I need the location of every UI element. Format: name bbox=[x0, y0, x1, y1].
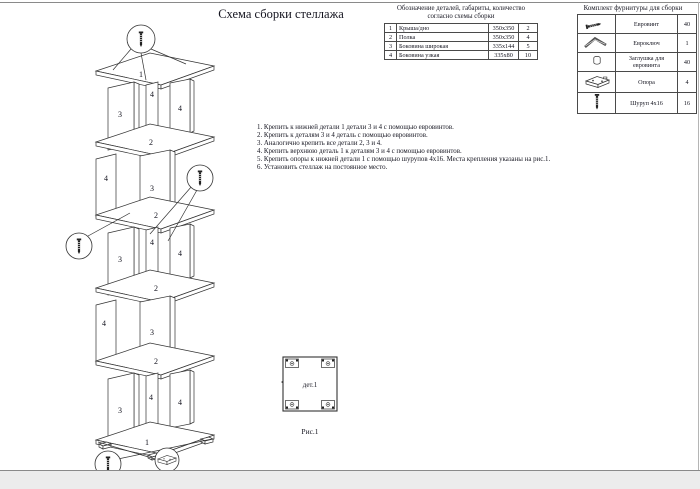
part-row-qty: 4 bbox=[519, 33, 538, 42]
diagram-part-label: 2 bbox=[154, 284, 158, 293]
part-row-name: Крыша/дно bbox=[397, 24, 489, 33]
fittings-table-title: Комплект фурнитуры для сборки bbox=[569, 4, 697, 12]
diagram-part-label: 3 bbox=[150, 184, 154, 193]
diagram-part-label: 2 bbox=[154, 357, 158, 366]
part-row-name: Полка bbox=[397, 33, 489, 42]
instruction-line: 6. Установить стеллаж на постоянное мест… bbox=[257, 164, 557, 172]
diagram-part-label: 4 bbox=[104, 174, 108, 183]
part-row-size: 335х144 bbox=[489, 42, 519, 51]
fitting-icon-cell bbox=[578, 72, 616, 93]
part-row-size: 350х350 bbox=[489, 33, 519, 42]
edge-mark-dot bbox=[281, 381, 283, 383]
detail-figure: дет.1 Рис.1 bbox=[279, 355, 343, 441]
fitting-qty: 4 bbox=[678, 72, 697, 93]
diagram-part-label: 4 bbox=[178, 249, 182, 258]
corner-bracket-icon bbox=[322, 359, 335, 368]
fitting-qty: 1 bbox=[678, 34, 697, 53]
part-row-size: 335х80 bbox=[489, 51, 519, 60]
corner-bracket-icon bbox=[286, 359, 299, 368]
part-row-num: 3 bbox=[385, 42, 397, 51]
cap-icon bbox=[580, 53, 614, 69]
euroscrew-icon bbox=[580, 15, 614, 31]
diagram-part-label: 2 bbox=[154, 211, 158, 220]
diagram-part-label: 3 bbox=[150, 328, 154, 337]
fitting-icon-cell bbox=[578, 53, 616, 72]
diagram-part-label: 4 bbox=[150, 90, 154, 99]
figure-caption: Рис.1 bbox=[301, 427, 318, 436]
part-row-name: Боковина узкая bbox=[397, 51, 489, 60]
page-top-border bbox=[0, 2, 700, 3]
assembly-instruction-page: Схема сборки стеллажа Обозначение детале… bbox=[0, 0, 700, 489]
table-row: 1 Крыша/дно 350х350 2 bbox=[385, 24, 538, 33]
fitting-name: Заглушка для евровинта bbox=[616, 53, 678, 72]
corner-bracket-icon bbox=[286, 401, 299, 410]
detail-figure-drawing: дет.1 Рис.1 bbox=[279, 355, 343, 441]
diagram-part-label: 4 bbox=[150, 238, 154, 247]
page-bottom-edge bbox=[0, 470, 700, 489]
part-row-qty: 10 bbox=[519, 51, 538, 60]
fittings-table: Комплект фурнитуры для сборки Евровинт 4… bbox=[569, 4, 697, 114]
instruction-line: 1. Крепить к нижней детали 1 детали 3 и … bbox=[257, 124, 557, 132]
table-row: Евровинт 40 bbox=[578, 15, 697, 34]
table-row: 2 Полка 350х350 4 bbox=[385, 33, 538, 42]
table-row: 4 Боковина узкая 335х80 10 bbox=[385, 51, 538, 60]
part-row-num: 4 bbox=[385, 51, 397, 60]
instruction-line: 4. Крепить верхнюю деталь 1 к деталям 3 … bbox=[257, 148, 557, 156]
diagram-part-label: 3 bbox=[118, 255, 122, 264]
page-right-border bbox=[698, 2, 699, 470]
fitting-qty: 40 bbox=[678, 53, 697, 72]
fitting-icon-cell bbox=[578, 34, 616, 53]
diagram-part-label: 4 bbox=[149, 393, 153, 402]
diagram-part-label: 1 bbox=[139, 70, 143, 79]
support-callout bbox=[155, 448, 179, 472]
instruction-line: 2. Крепить к деталям 3 и 4 деталь с помо… bbox=[257, 132, 557, 140]
euroscrew-callout bbox=[187, 165, 213, 191]
figure-part-label: дет.1 bbox=[303, 381, 318, 389]
part-row-num: 2 bbox=[385, 33, 397, 42]
diagram-part-label: 3 bbox=[118, 406, 122, 415]
fitting-qty: 16 bbox=[678, 93, 697, 114]
part-row-qty: 2 bbox=[519, 24, 538, 33]
part-row-qty: 5 bbox=[519, 42, 538, 51]
fitting-name: Евровинт bbox=[616, 15, 678, 34]
diagram-part-label: 1 bbox=[145, 438, 149, 447]
diagram-part-label: 4 bbox=[178, 398, 182, 407]
parts-table-title-line1: Обозначение деталей, габариты, количеств… bbox=[384, 5, 538, 13]
parts-table: Обозначение деталей, габариты, количеств… bbox=[384, 5, 538, 60]
table-row: Опора 4 bbox=[578, 72, 697, 93]
fitting-qty: 40 bbox=[678, 15, 697, 34]
part-row-name: Боковина широкая bbox=[397, 42, 489, 51]
fitting-name: Шуруп 4х16 bbox=[616, 93, 678, 114]
diagram-part-label: 3 bbox=[118, 110, 122, 119]
table-row: 3 Боковина широкая 335х144 5 bbox=[385, 42, 538, 51]
euroscrew-callout bbox=[66, 233, 92, 259]
diagram-part-label: 2 bbox=[149, 138, 153, 147]
fitting-name: Евроключ bbox=[616, 34, 678, 53]
part-row-num: 1 bbox=[385, 24, 397, 33]
fitting-icon-cell bbox=[578, 15, 616, 34]
screw-icon bbox=[580, 93, 614, 111]
euroscrew-callout bbox=[127, 25, 155, 53]
support-icon bbox=[580, 72, 614, 90]
assembly-diagram: 1 3 4 4 2 4 3 2 3 4 4 2 4 3 2 3 4 4 1 bbox=[40, 10, 250, 485]
table-row: Заглушка для евровинта 40 bbox=[578, 53, 697, 72]
fitting-name: Опора bbox=[616, 72, 678, 93]
table-row: Евроключ 1 bbox=[578, 34, 697, 53]
corner-bracket-icon bbox=[322, 401, 335, 410]
instruction-line: 3. Аналогично крепить все детали 2, 3 и … bbox=[257, 140, 557, 148]
instruction-line: 5. Крепить опоры к нижней детали 1 с пом… bbox=[257, 156, 557, 164]
instructions-list: 1. Крепить к нижней детали 1 детали 3 и … bbox=[257, 124, 557, 171]
diagram-part-label: 4 bbox=[178, 104, 182, 113]
diagram-part-label: 4 bbox=[102, 319, 106, 328]
hexkey-icon bbox=[580, 34, 614, 50]
fittings-table-grid: Евровинт 40 Евроключ 1 bbox=[577, 14, 697, 114]
fitting-icon-cell bbox=[578, 93, 616, 114]
parts-table-grid: 1 Крыша/дно 350х350 2 2 Полка 350х350 4 … bbox=[384, 23, 538, 60]
table-row: Шуруп 4х16 16 bbox=[578, 93, 697, 114]
part-row-size: 350х350 bbox=[489, 24, 519, 33]
parts-table-title-line2: согласно схемы сборки bbox=[384, 13, 538, 21]
